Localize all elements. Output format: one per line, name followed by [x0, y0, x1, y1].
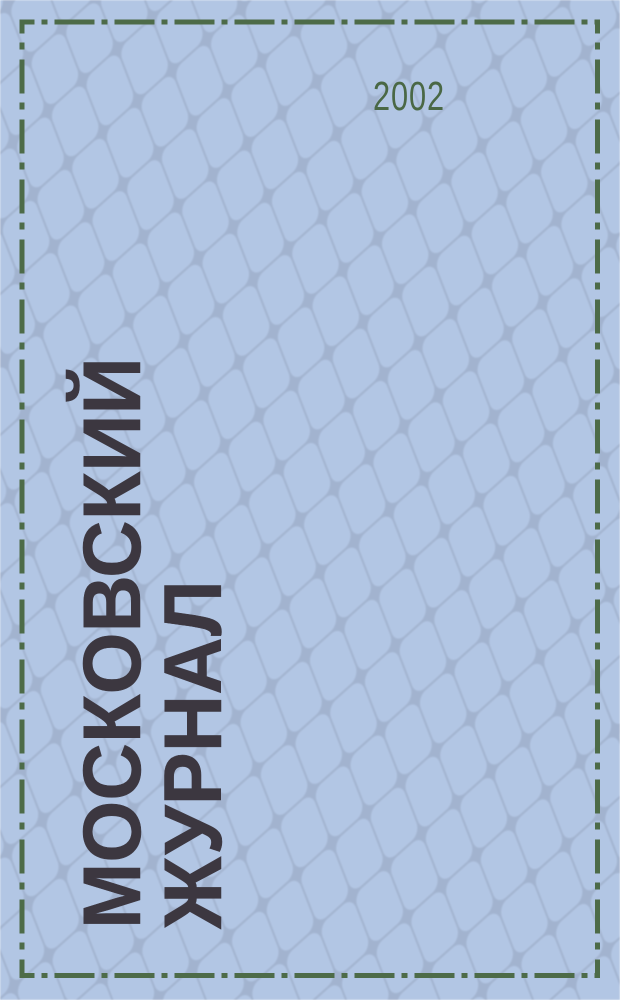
- svg-text:2002: 2002: [373, 73, 445, 119]
- svg-text:МОСКОВСКИЙ: МОСКОВСКИЙ: [66, 357, 158, 929]
- svg-text:ЖУРНАЛ: ЖУРНАЛ: [148, 580, 239, 930]
